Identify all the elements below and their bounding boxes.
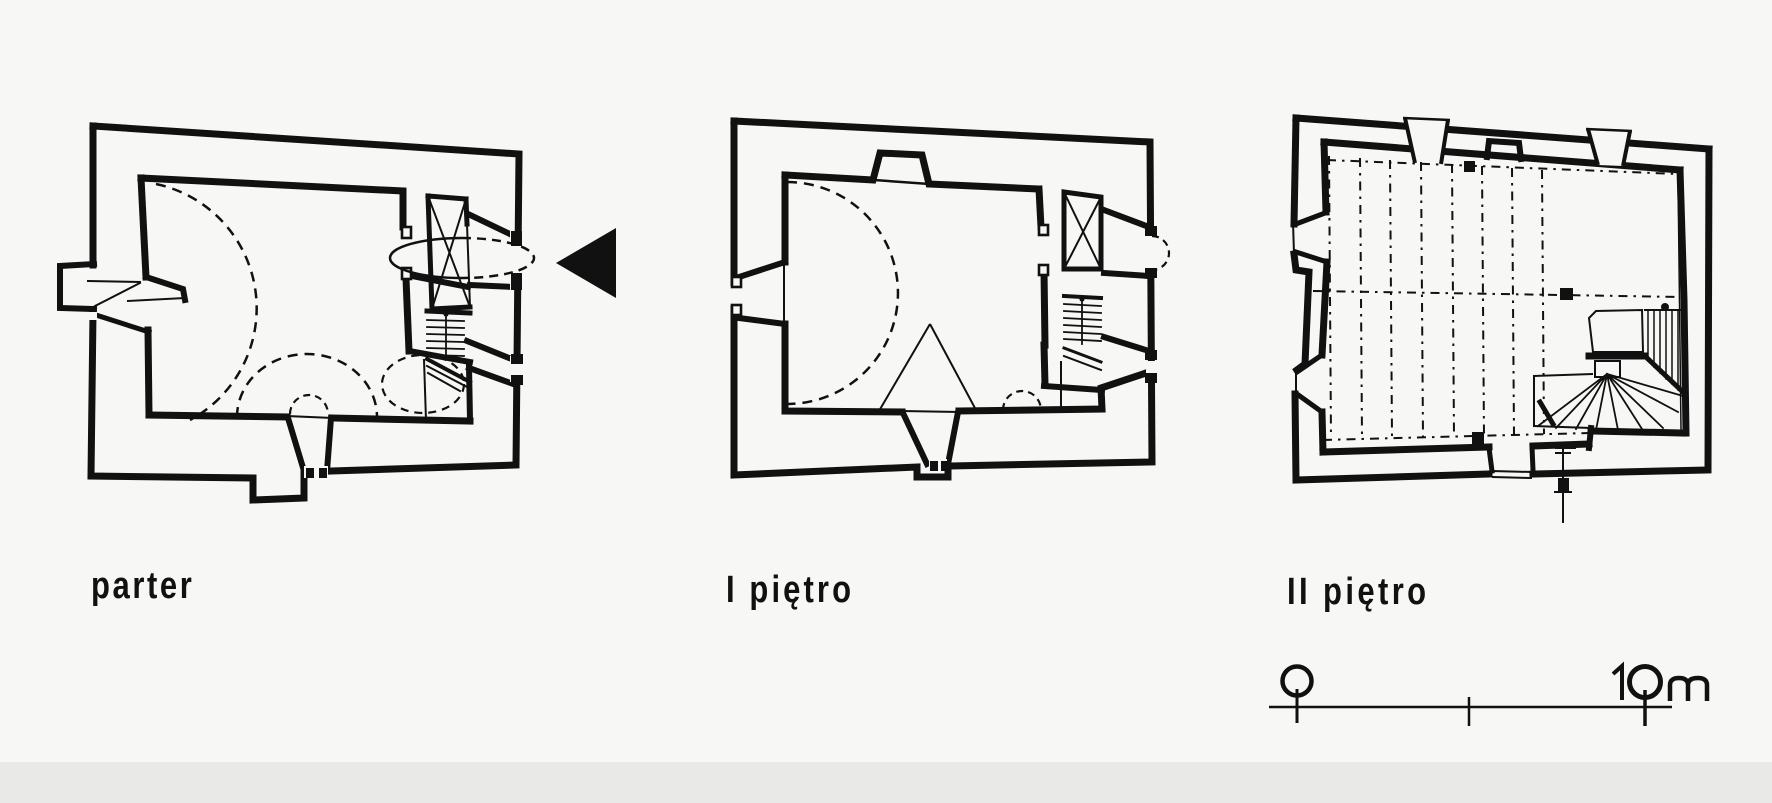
svg-text:II piętro: II piętro (1287, 571, 1430, 613)
svg-text:I piętro: I piętro (726, 569, 854, 611)
svg-text:parter: parter (91, 565, 194, 607)
